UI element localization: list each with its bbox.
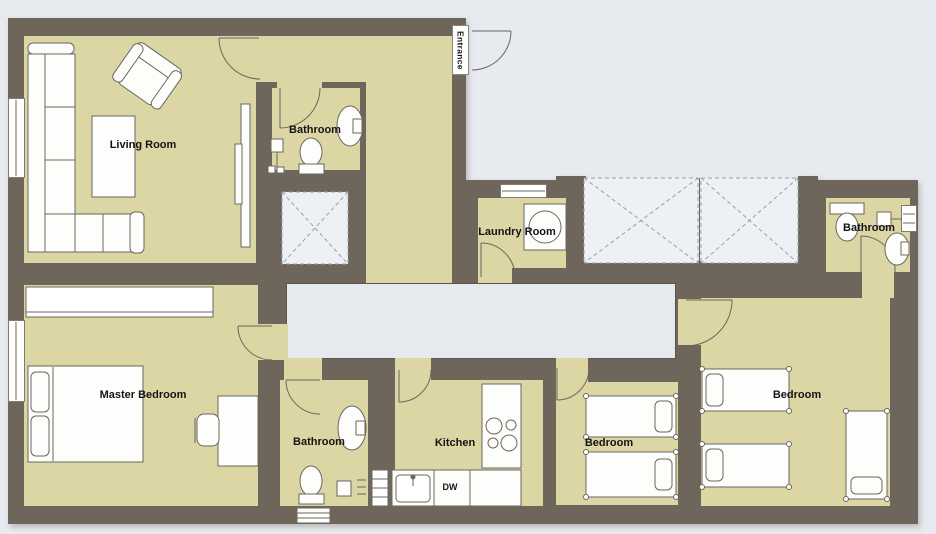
bath-right-label: Bathroom [839,222,899,234]
kitchen-label: Kitchen [425,437,485,449]
entrance-label: Entrance [452,25,469,75]
living-room-label: Living Room [88,139,198,151]
master-bedroom-label: Master Bedroom [83,389,203,401]
bath-top-label: Bathroom [285,124,345,136]
labels-layer: Living Room Bathroom Laundry Room Bathro… [0,0,936,534]
bedroom-right-label: Bedroom [767,389,827,401]
bedroom-mid-label: Bedroom [579,437,639,449]
bath-bottom-label: Bathroom [289,436,349,448]
dishwasher-label: DW [436,482,464,492]
laundry-label: Laundry Room [477,226,557,238]
floor-plan: Living Room Bathroom Laundry Room Bathro… [0,0,936,534]
